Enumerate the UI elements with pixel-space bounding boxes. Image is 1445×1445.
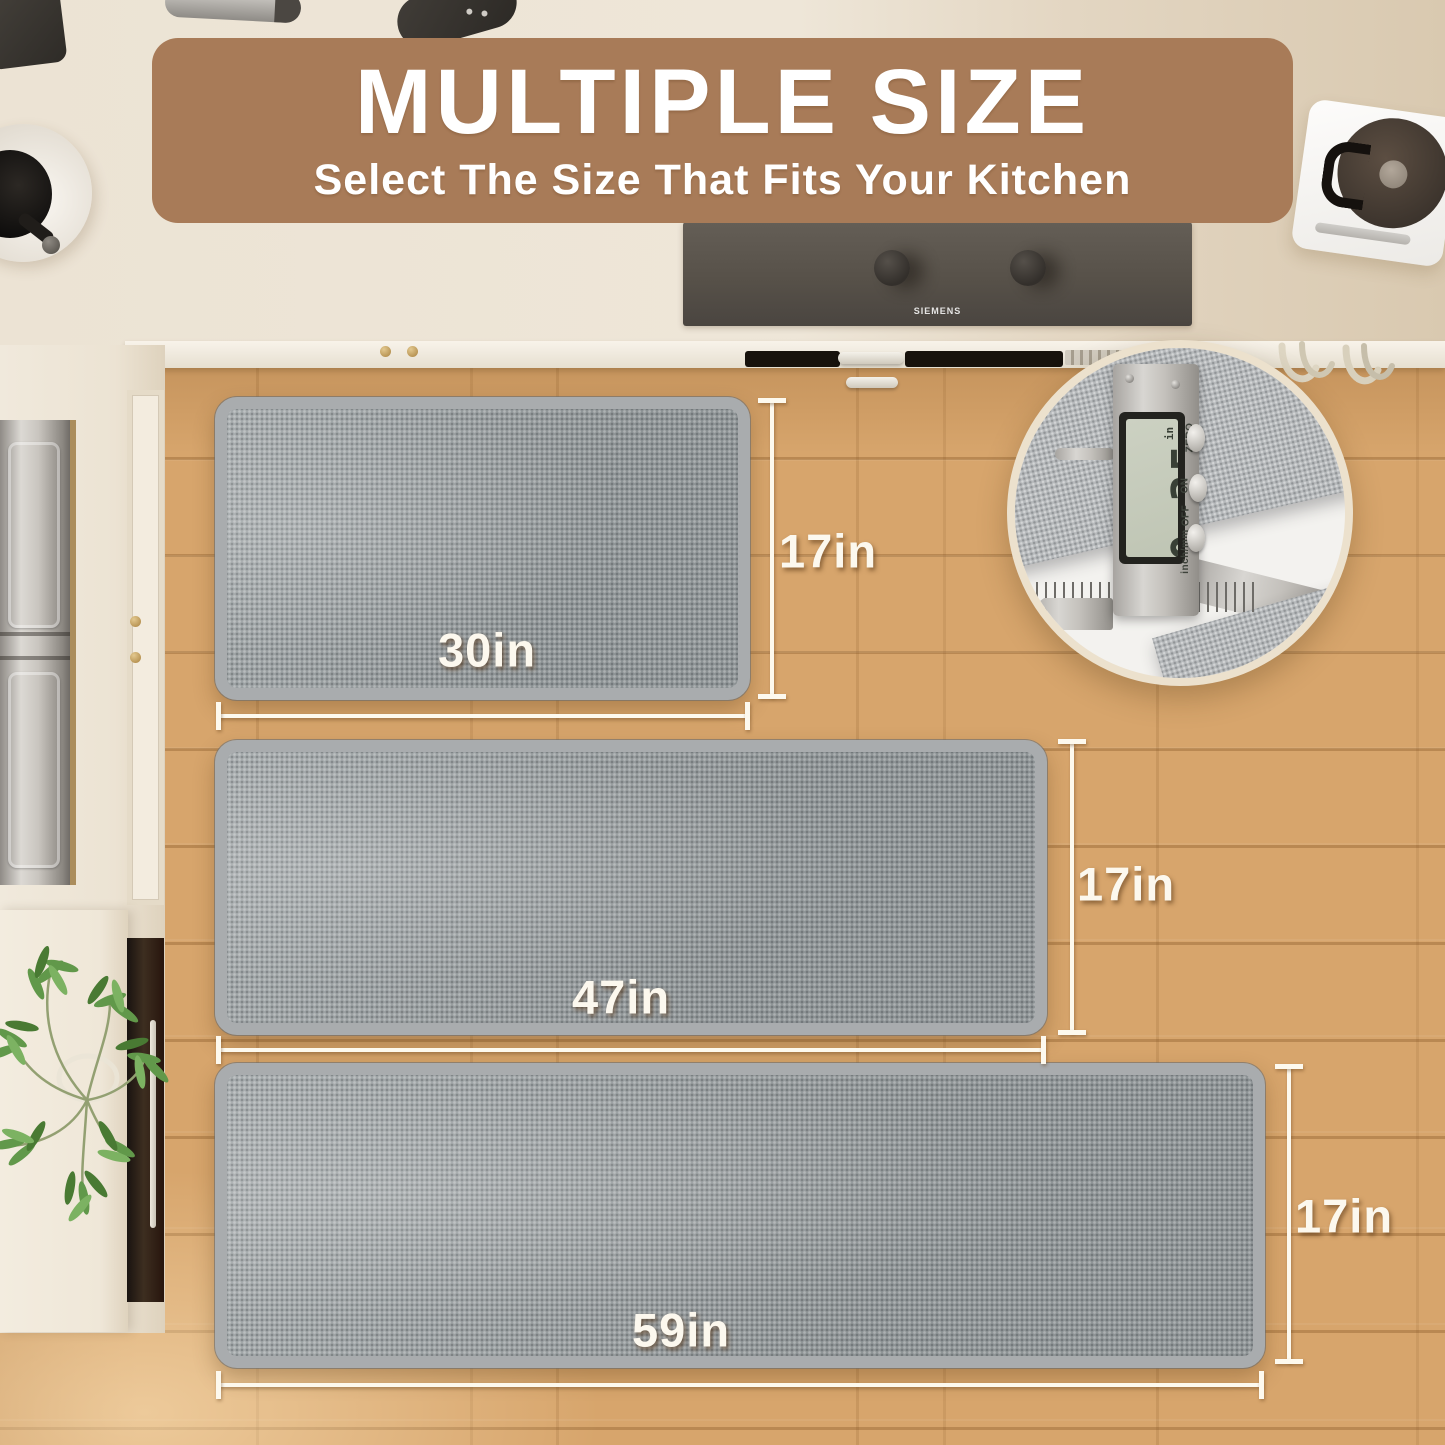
caliper-left-jaw	[1029, 598, 1113, 630]
headline-banner: MULTIPLE SIZE Select The Size That Fits …	[152, 38, 1293, 223]
thickness-inset-circle: 0.35 in ZERO ON OFF inch/mm	[1007, 340, 1353, 686]
mat-large	[215, 1063, 1265, 1368]
mat-medium-width-label: 47in	[572, 970, 670, 1025]
caliper-on-button	[1189, 474, 1207, 502]
banner-subtitle: Select The Size That Fits Your Kitchen	[152, 156, 1293, 205]
dim-cap	[1275, 1064, 1303, 1069]
dim-cap	[216, 1371, 221, 1399]
fridge-door-seam	[0, 656, 70, 660]
dim-line-horizontal-small	[218, 714, 748, 718]
countertop-appliance	[1290, 98, 1445, 268]
dim-cap	[1058, 739, 1086, 744]
mat-small-height-label: 17in	[779, 524, 877, 579]
dim-cap	[1058, 1030, 1086, 1035]
dim-cap	[1259, 1371, 1264, 1399]
cabinet-knob	[380, 346, 391, 357]
drawer-handle	[838, 352, 904, 364]
corner-appliance	[0, 0, 68, 70]
dim-line-horizontal-medium	[218, 1048, 1044, 1052]
banner-title: MULTIPLE SIZE	[152, 56, 1293, 150]
caliper-lcd-screen: 0.35 in	[1126, 419, 1178, 557]
caliper-screw	[1125, 374, 1134, 383]
caliper-thumb-rod	[1055, 448, 1115, 460]
dim-cap	[1041, 1036, 1046, 1064]
caliper-lcd: 0.35 in	[1119, 412, 1185, 564]
cabinet-knob	[130, 652, 141, 663]
potted-plant	[0, 940, 182, 1230]
fridge-door-panel	[8, 442, 60, 628]
tall-cabinet-door	[127, 390, 164, 905]
under-cabinet-slot	[745, 351, 840, 367]
product-size-infographic: SIEMENS	[0, 0, 1445, 1445]
caliper-zero-button	[1187, 424, 1205, 452]
coffee-machine-knob	[42, 236, 60, 254]
dim-line-horizontal-large	[218, 1383, 1262, 1387]
appliance-handle	[1318, 139, 1371, 210]
dim-cap	[758, 398, 786, 403]
fridge-door-seam	[0, 632, 70, 636]
mat-large-width-label: 59in	[632, 1303, 730, 1358]
mat-sheen	[227, 1075, 1253, 1356]
cabinet-knob	[407, 346, 418, 357]
drawer-handle	[846, 377, 898, 388]
mat-medium-height-label: 17in	[1077, 857, 1175, 912]
caliper-screw	[1171, 380, 1180, 389]
dim-line-vertical-medium	[1070, 741, 1074, 1033]
dim-cap	[216, 702, 221, 730]
cooktop-knob	[1010, 250, 1046, 286]
dim-cap	[745, 702, 750, 730]
cooktop-brand: SIEMENS	[683, 306, 1192, 316]
dim-line-vertical-large	[1287, 1066, 1291, 1362]
stainless-fridge	[0, 420, 76, 885]
caliper-unit: in	[1163, 427, 1176, 440]
dim-cap	[758, 694, 786, 699]
caliper-off-button	[1187, 524, 1205, 552]
dim-cap	[216, 1036, 221, 1064]
cooktop: SIEMENS	[683, 222, 1192, 326]
dim-line-vertical-small	[770, 400, 774, 697]
dim-cap	[1275, 1359, 1303, 1364]
cooktop-knob	[874, 250, 910, 286]
cabinet-knob	[130, 616, 141, 627]
mat-large-height-label: 17in	[1295, 1189, 1393, 1244]
mat-small-width-label: 30in	[438, 623, 536, 678]
caliper-off-label: OFF	[1180, 505, 1191, 527]
fridge-door-panel	[8, 672, 60, 868]
